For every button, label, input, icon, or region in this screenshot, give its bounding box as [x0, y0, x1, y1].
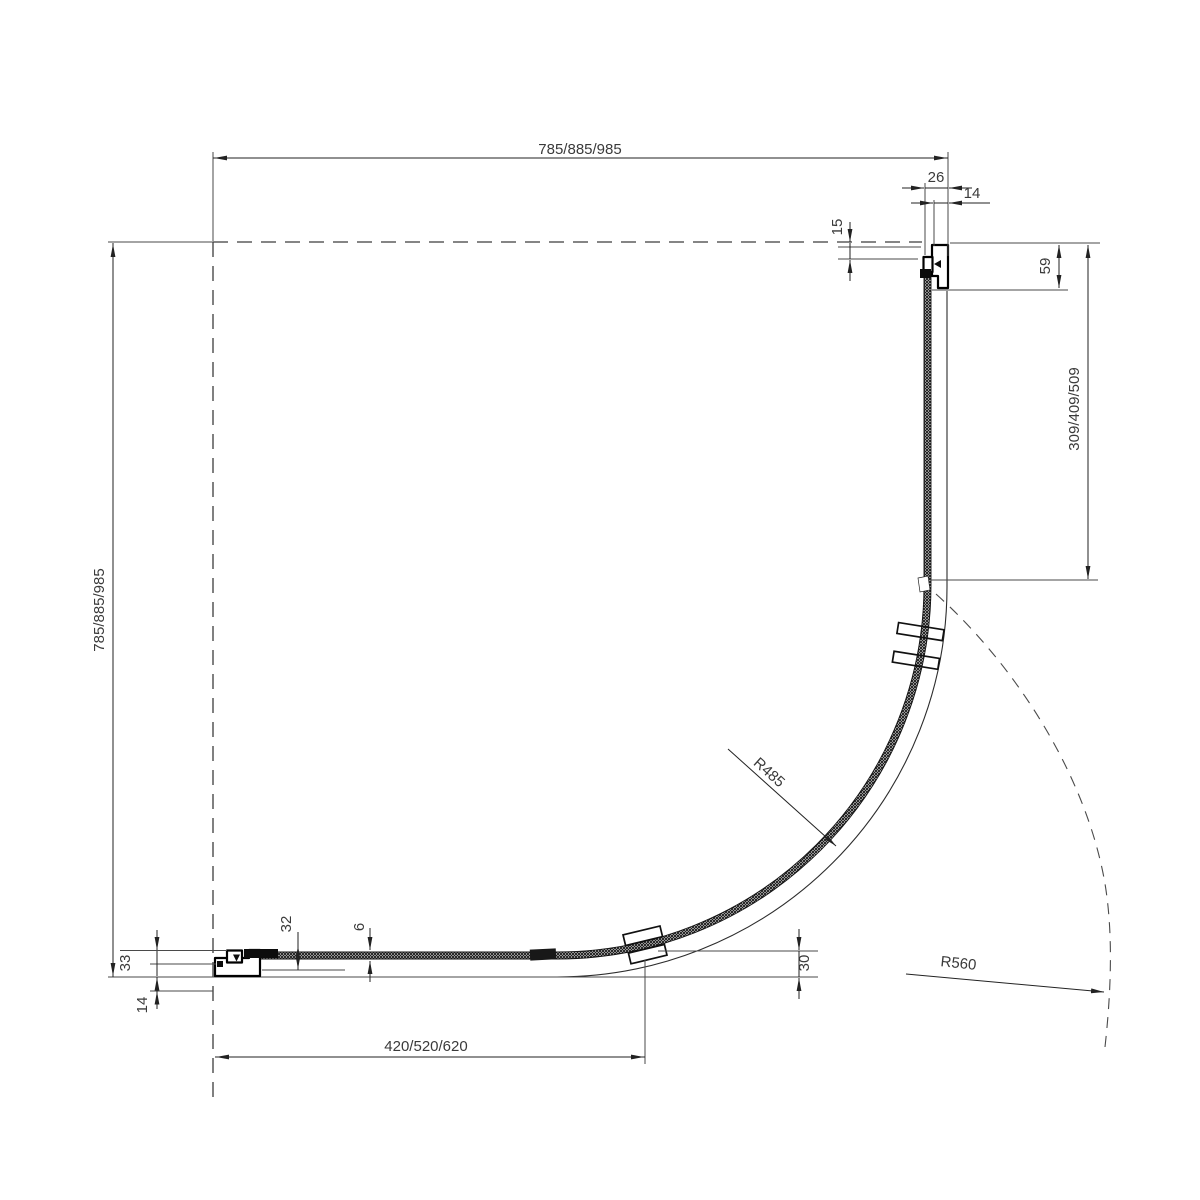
dim-overall-width: 785/885/985 — [213, 141, 948, 158]
dim-door-opening-label: 420/520/620 — [384, 1038, 467, 1055]
top-profile-glass-clamp — [920, 269, 931, 278]
dim-wall-clearance-label: 15 — [829, 219, 846, 236]
panel-junction-top — [918, 576, 930, 592]
dim-profile-width-label: 26 — [928, 169, 945, 186]
radius-glass: R485 — [728, 749, 836, 846]
dim-wall-clearance: 15 — [829, 219, 850, 281]
dim-overall-width-label: 785/885/985 — [538, 141, 621, 158]
wall-dashed-lines — [213, 242, 922, 1100]
dim-bottom-profile-total-label: 33 — [117, 955, 134, 972]
radius-swing: R560 — [906, 953, 1104, 992]
dim-overall-depth: 785/885/985 — [91, 243, 113, 977]
dim-bottom-assembly: 32 — [278, 916, 298, 970]
radius-swing-label: R560 — [940, 953, 977, 974]
dim-glass-thickness-label: 6 — [351, 923, 368, 931]
dim-profile-inset-top-label: 14 — [964, 185, 981, 202]
drawing-canvas: 785/885/985 785/885/985 26 14 15 59 — [0, 0, 1200, 1200]
dim-bottom-assembly-label: 32 — [278, 916, 295, 933]
dim-fixed-segment-label: 309/409/509 — [1066, 367, 1083, 450]
dim-profile-inset-bottom-label: 14 — [134, 997, 151, 1014]
bottom-profile-detail — [217, 961, 223, 967]
dim-profile-depth: 59 — [1037, 245, 1059, 288]
bottom-profile-glass-clamp — [244, 949, 278, 958]
shower-enclosure-plan-drawing: 785/885/985 785/885/985 26 14 15 59 — [0, 0, 1200, 1200]
dim-overall-depth-label: 785/885/985 — [91, 568, 108, 651]
dim-profile-inset-bottom: 14 — [134, 977, 157, 1013]
bottom-wall-profile — [215, 949, 278, 976]
dim-profile-width: 26 — [902, 169, 972, 188]
panel-junction-bottom — [530, 948, 557, 960]
door-outer-edge — [557, 291, 947, 977]
dim-bracket-offset: 30 — [796, 929, 813, 999]
top-bracket-plate-1 — [897, 623, 944, 641]
dim-profile-depth-label: 59 — [1037, 258, 1054, 275]
dim-door-opening: 420/520/620 — [215, 1038, 645, 1057]
dim-fixed-segment: 309/409/509 — [1066, 245, 1088, 579]
dim-bracket-offset-label: 30 — [796, 955, 813, 972]
glass-panel — [247, 273, 931, 959]
